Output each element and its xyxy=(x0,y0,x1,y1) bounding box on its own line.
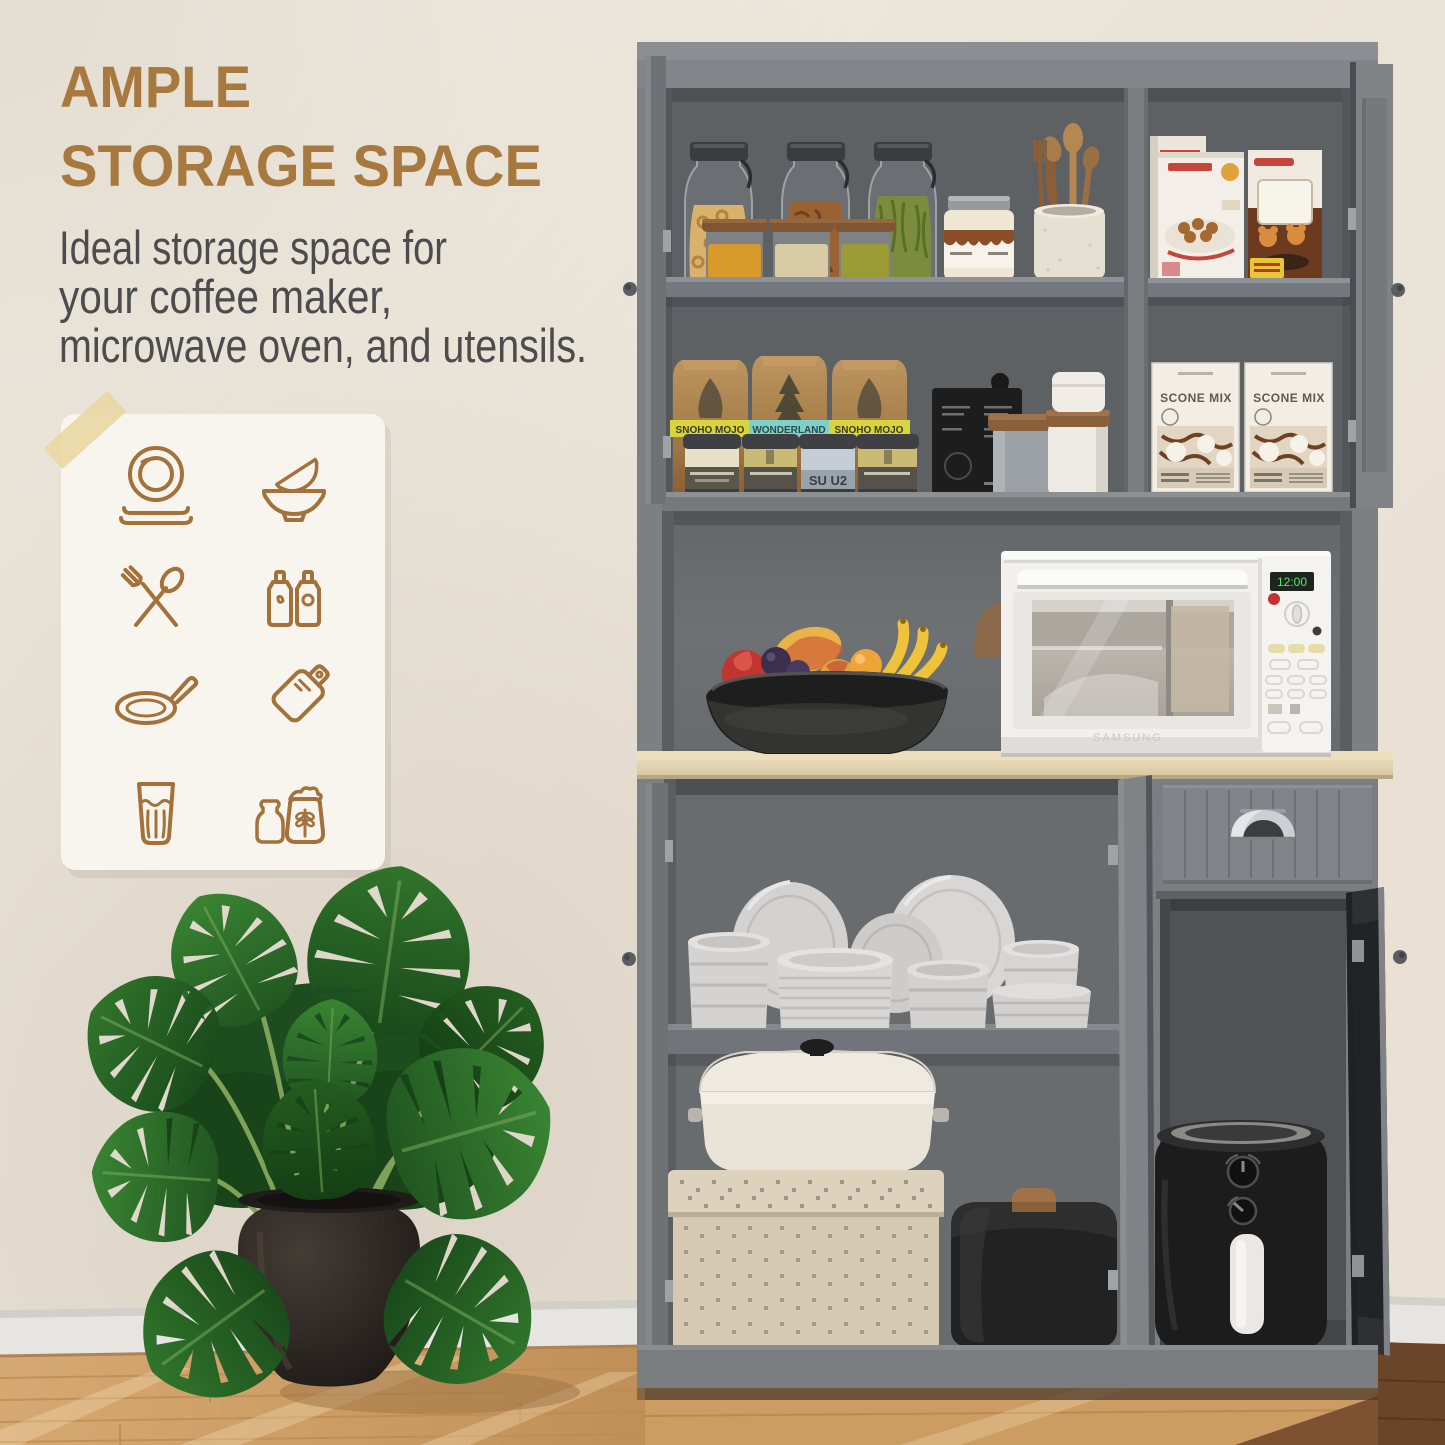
svg-text:your coffee maker,: your coffee maker, xyxy=(59,270,392,323)
svg-text:Ideal storage space for: Ideal storage space for xyxy=(59,221,447,274)
svg-text:SU U2: SU U2 xyxy=(809,473,847,488)
svg-text:AMPLE: AMPLE xyxy=(60,55,251,120)
svg-text:SCONE MIX: SCONE MIX xyxy=(1253,391,1325,405)
svg-text:12:00: 12:00 xyxy=(1277,575,1307,589)
svg-text:STORAGE SPACE: STORAGE SPACE xyxy=(60,134,542,199)
svg-text:SAMSUNG: SAMSUNG xyxy=(1093,732,1163,744)
svg-text:SCONE MIX: SCONE MIX xyxy=(1160,391,1232,405)
svg-text:microwave oven, and utensils.: microwave oven, and utensils. xyxy=(59,319,587,372)
